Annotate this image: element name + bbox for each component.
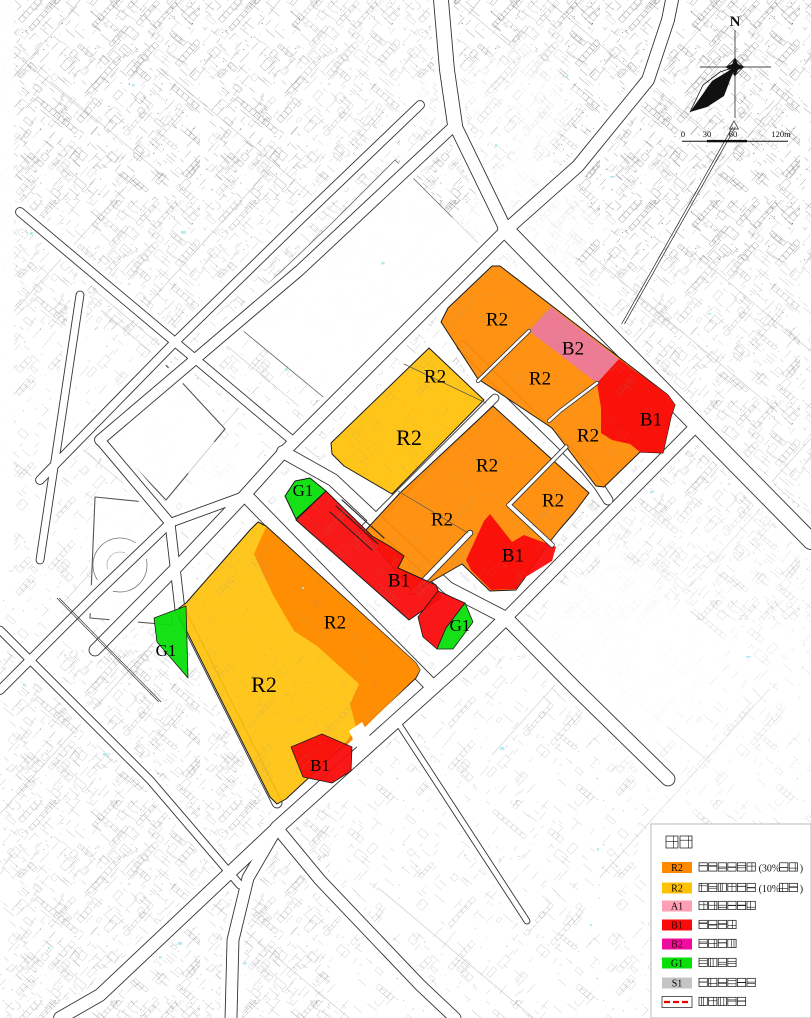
- svg-text:G1: G1: [293, 481, 314, 500]
- svg-text:S1: S1: [672, 979, 683, 990]
- svg-text:R2: R2: [529, 368, 551, 389]
- svg-text:B1: B1: [388, 570, 410, 591]
- svg-text:B2: B2: [671, 940, 683, 951]
- svg-text:G1: G1: [671, 959, 683, 970]
- svg-text:120m: 120m: [771, 129, 791, 139]
- svg-text:30: 30: [703, 129, 712, 139]
- svg-text:R2: R2: [542, 490, 564, 511]
- svg-text:R2: R2: [424, 366, 446, 387]
- svg-text:R2: R2: [486, 309, 508, 330]
- svg-text:R2: R2: [431, 509, 453, 530]
- svg-text:B1: B1: [310, 756, 330, 775]
- svg-text:B1: B1: [502, 545, 524, 566]
- svg-text:B1: B1: [640, 409, 662, 430]
- svg-text:G1: G1: [450, 616, 471, 635]
- svg-text:R2: R2: [251, 672, 277, 697]
- svg-text:60: 60: [729, 129, 738, 139]
- svg-text:B1: B1: [671, 921, 683, 932]
- svg-text:): ): [800, 884, 803, 895]
- svg-text:B2: B2: [562, 338, 584, 359]
- svg-text:0: 0: [681, 129, 685, 139]
- svg-text:(30%: (30%: [759, 864, 781, 875]
- svg-text:R2: R2: [324, 612, 346, 633]
- svg-text:R2: R2: [476, 455, 498, 476]
- svg-text:A1: A1: [671, 902, 683, 913]
- svg-text:N: N: [730, 14, 741, 30]
- svg-text:R2: R2: [671, 863, 683, 874]
- svg-text:R2: R2: [671, 884, 683, 895]
- svg-text:(10%: (10%: [759, 884, 781, 895]
- svg-text:R2: R2: [396, 425, 422, 450]
- svg-text:R2: R2: [577, 425, 599, 446]
- svg-text:G1: G1: [156, 641, 177, 660]
- svg-text:): ): [800, 864, 803, 875]
